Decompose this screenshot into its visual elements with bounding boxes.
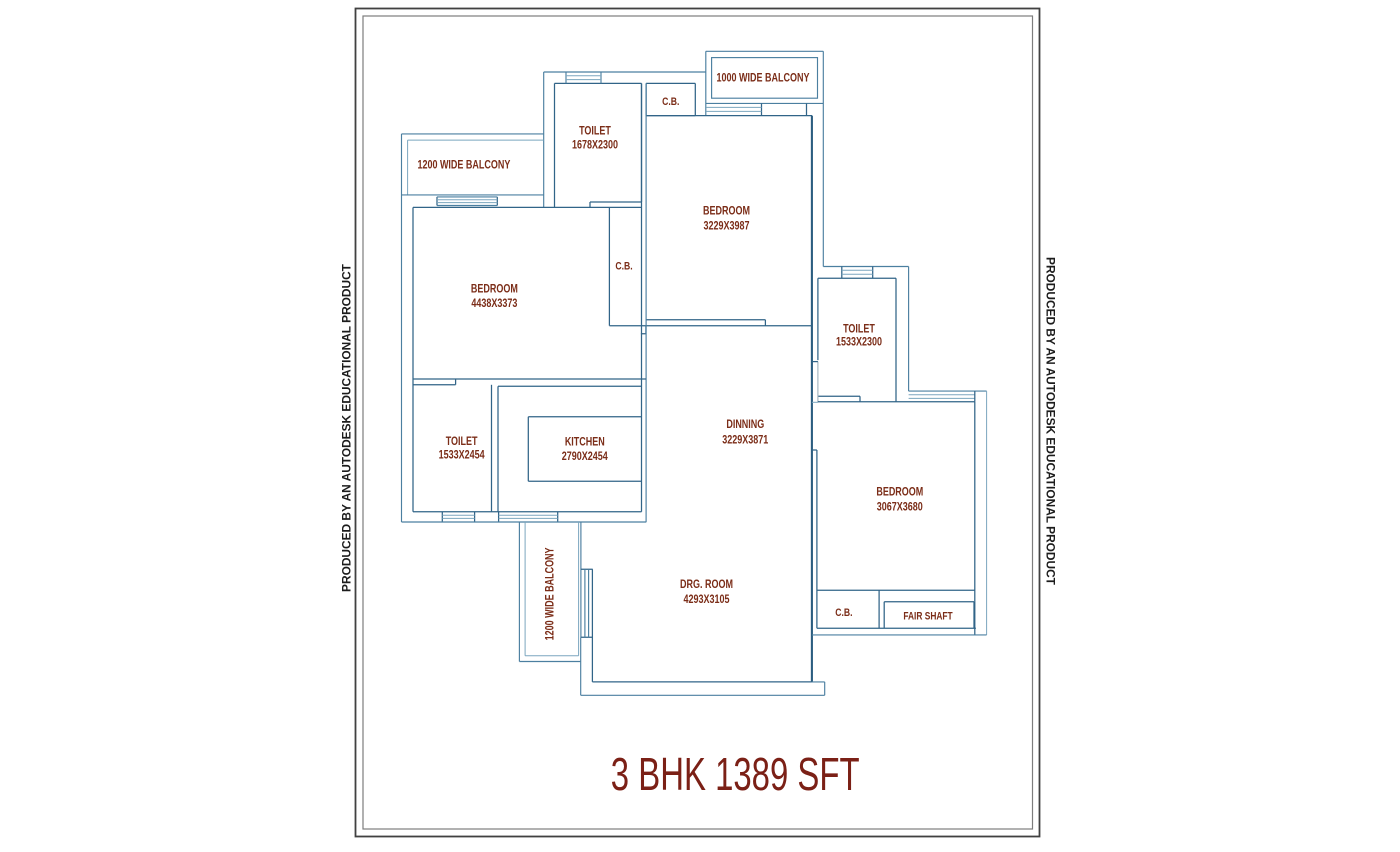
svg-text:KITCHEN: KITCHEN [565,435,605,449]
svg-text:TOILET: TOILET [579,124,611,138]
svg-text:BEDROOM: BEDROOM [703,204,750,218]
svg-text:PRODUCED BY AN AUTODESK EDUCAT: PRODUCED BY AN AUTODESK EDUCATIONAL PROD… [1044,257,1058,586]
svg-text:1000 WIDE BALCONY: 1000 WIDE BALCONY [717,71,810,85]
svg-text:C.B.: C.B. [662,96,680,108]
svg-text:3067X3680: 3067X3680 [877,500,923,514]
svg-text:4438X3373: 4438X3373 [471,297,517,311]
svg-text:1678X2300: 1678X2300 [572,138,618,152]
svg-text:TOILET: TOILET [446,435,478,449]
svg-text:1200 WIDE BALCONY: 1200 WIDE BALCONY [417,158,510,172]
svg-text:BEDROOM: BEDROOM [876,485,923,499]
svg-text:TOILET: TOILET [843,322,875,336]
svg-text:1533X2454: 1533X2454 [439,448,485,462]
svg-text:1200 WIDE BALCONY: 1200 WIDE BALCONY [543,547,557,640]
svg-text:BEDROOM: BEDROOM [471,282,518,296]
svg-text:DRG. ROOM: DRG. ROOM [680,578,733,592]
svg-text:PRODUCED BY AN AUTODESK EDUCAT: PRODUCED BY AN AUTODESK EDUCATIONAL PROD… [340,263,354,592]
svg-text:3 BHK 1389 SFT: 3 BHK 1389 SFT [611,749,860,800]
svg-text:C.B.: C.B. [835,607,853,619]
svg-text:C.B.: C.B. [615,260,633,272]
svg-text:2790X2454: 2790X2454 [562,450,608,464]
svg-text:4293X3105: 4293X3105 [684,593,730,607]
svg-text:DINNING: DINNING [726,418,764,432]
svg-text:3229X3871: 3229X3871 [722,433,768,447]
svg-text:FAIR SHAFT: FAIR SHAFT [903,610,953,623]
svg-text:3229X3987: 3229X3987 [704,219,750,233]
svg-text:1533X2300: 1533X2300 [836,335,882,349]
